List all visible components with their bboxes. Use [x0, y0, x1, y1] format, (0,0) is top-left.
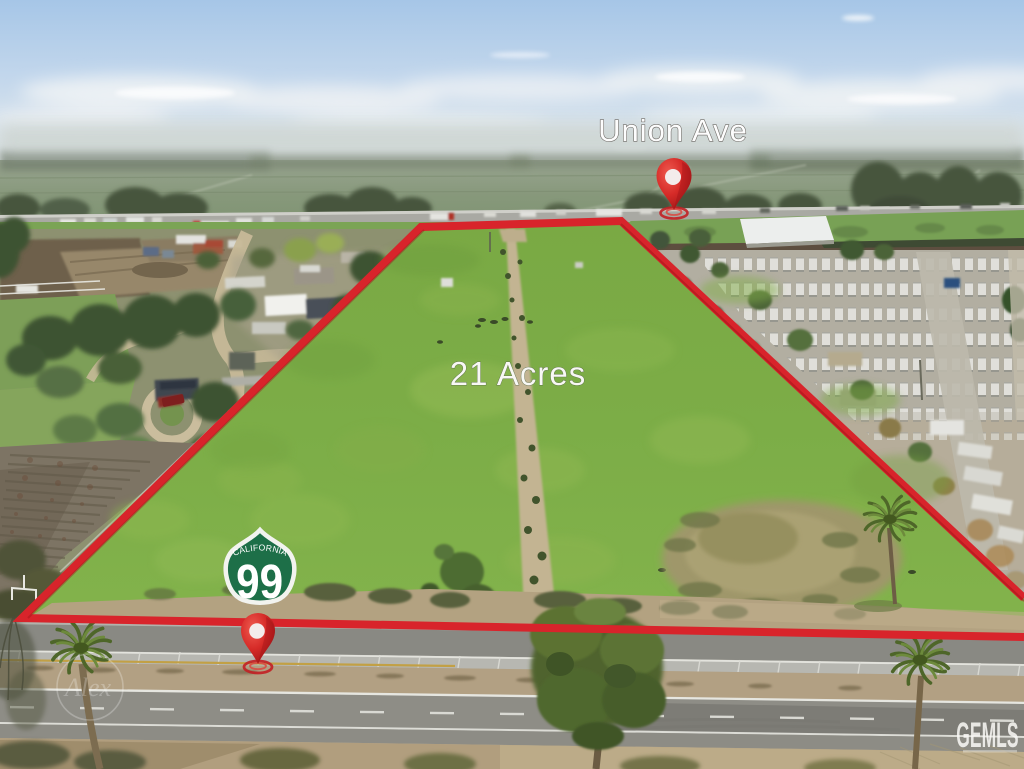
svg-text:99: 99 — [236, 554, 283, 608]
svg-text:GEMLS: GEMLS — [956, 715, 1018, 754]
svg-text:Alex: Alex — [63, 673, 112, 702]
svg-text:21 Acres: 21 Acres — [450, 355, 586, 392]
svg-text:Union Ave: Union Ave — [598, 113, 748, 148]
